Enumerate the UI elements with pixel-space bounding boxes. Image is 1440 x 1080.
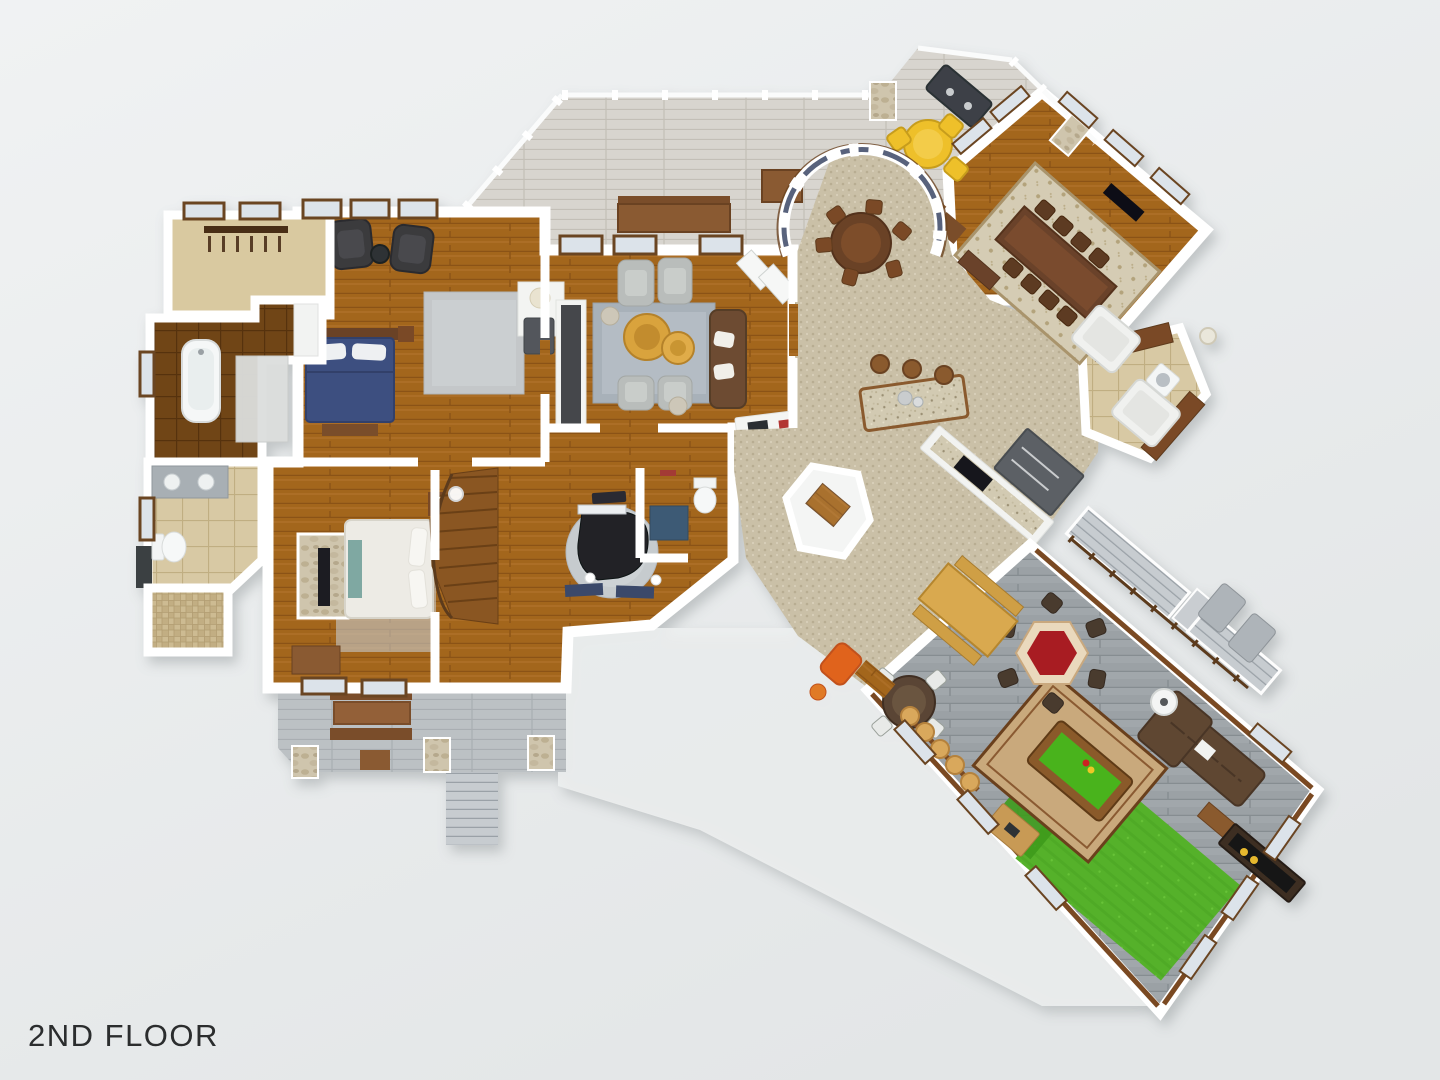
patio-table-center: [913, 129, 943, 159]
threshold-master-living: [540, 340, 550, 392]
bar-stool-5: [961, 773, 979, 791]
pool-ball-2: [1088, 767, 1095, 774]
master-bed-pillow-2: [352, 343, 387, 361]
bed2-throw: [348, 540, 362, 598]
master-nightstand-2: [398, 326, 414, 342]
closet2-floor: [148, 588, 228, 652]
bed2-bench: [292, 646, 340, 674]
desk-red-book: [778, 419, 789, 428]
powder-cabinet: [650, 506, 688, 540]
living-chair-3-cushion: [625, 382, 647, 402]
island-stool-2: [903, 360, 921, 378]
foyer-chandelier: [449, 487, 463, 501]
threshold-master-hall: [420, 456, 470, 467]
washer-door: [1156, 373, 1170, 387]
threshold-living-nook: [789, 304, 798, 356]
window-closet-1: [184, 203, 224, 219]
bar-stool-4: [946, 756, 964, 774]
kitchen-counter-granite: [561, 305, 581, 425]
window-bath-2: [140, 498, 154, 540]
recliner-2-cushion: [397, 234, 426, 265]
grill-knob-2: [964, 102, 972, 110]
window-master-2: [351, 200, 389, 218]
game-side-table-cup: [1160, 698, 1168, 706]
deck-bench: [618, 204, 730, 232]
deck-steps: [446, 772, 498, 845]
bed2-pillow-1: [408, 527, 428, 566]
window-bath-1: [140, 352, 154, 396]
nook-table-ring: [841, 223, 881, 263]
bed2-pillow-2: [408, 569, 428, 608]
orange-kid-table: [810, 684, 826, 700]
island-stool-3: [935, 366, 953, 384]
living-side-table-1: [601, 307, 619, 325]
toilet-bowl: [162, 532, 186, 562]
window-living-3: [700, 236, 742, 254]
recliner-side-table: [371, 245, 389, 263]
coffee-table-2-ring: [670, 340, 686, 356]
island-pot-1: [898, 391, 912, 405]
bar-bottle-2: [1250, 856, 1258, 864]
bath-mat: [236, 356, 288, 442]
coffee-table-1-ring: [634, 324, 660, 350]
entry-post-2: [651, 575, 661, 585]
floor-lamp: [1200, 328, 1216, 344]
master-bed-bench: [322, 424, 378, 436]
nook-chair-2: [865, 199, 882, 214]
entry-mat-1: [565, 583, 604, 597]
grill-knob-1: [946, 88, 954, 96]
poker-chair-3: [1088, 669, 1107, 690]
living-chair-2-cushion: [664, 268, 686, 294]
entry-post-1: [585, 573, 595, 583]
piano-keyboard: [578, 505, 626, 514]
floor-plan-page: 2ND FLOOR: [0, 0, 1440, 1080]
window-living-2: [614, 236, 656, 254]
powder-toilet: [694, 487, 716, 513]
deck-side-table: [360, 750, 390, 770]
closet-rod: [204, 226, 288, 233]
powder-art: [660, 470, 676, 476]
living-sofa: [710, 310, 746, 408]
deck-pier-2: [424, 738, 450, 772]
deck-pier-3: [528, 736, 554, 770]
threshold-living-hall: [600, 423, 658, 433]
window-master-3: [399, 200, 437, 218]
deck-stone-pillar-1: [870, 82, 896, 120]
window-bed2-2: [362, 680, 406, 696]
bathtub-faucet: [198, 349, 204, 355]
master-rug-center: [432, 300, 516, 386]
bath2-vanity: [152, 466, 228, 498]
bath2-mirror: [136, 546, 152, 588]
living-side-table-2: [669, 397, 687, 415]
floor-plan-rendering: [0, 0, 1440, 1080]
master-vanity: [294, 304, 318, 356]
deck-pier-1: [292, 746, 318, 778]
nook-chair-6: [815, 237, 832, 252]
window-living-1: [560, 236, 602, 254]
window-bed2-1: [302, 678, 346, 694]
pergola-table: [334, 702, 410, 724]
fireplace-tv: [318, 548, 330, 606]
recliner-1-cushion: [337, 229, 366, 260]
island-pot-2: [913, 397, 923, 407]
bath2-sink-1: [164, 474, 180, 490]
bath2-sink-2: [198, 474, 214, 490]
floor-label: 2ND FLOOR: [28, 1018, 219, 1054]
island-stool-1: [871, 355, 889, 373]
window-master-1: [303, 200, 341, 218]
living-chair-1-cushion: [625, 270, 647, 296]
pool-ball-1: [1083, 760, 1090, 767]
living-sofa-pillow-2: [713, 363, 735, 381]
entry-mat-2: [616, 585, 654, 598]
bathtub-basin: [188, 348, 214, 410]
bar-bottle-1: [1240, 848, 1248, 856]
window-closet-2: [240, 203, 280, 219]
pergola-bench-2: [330, 728, 412, 740]
